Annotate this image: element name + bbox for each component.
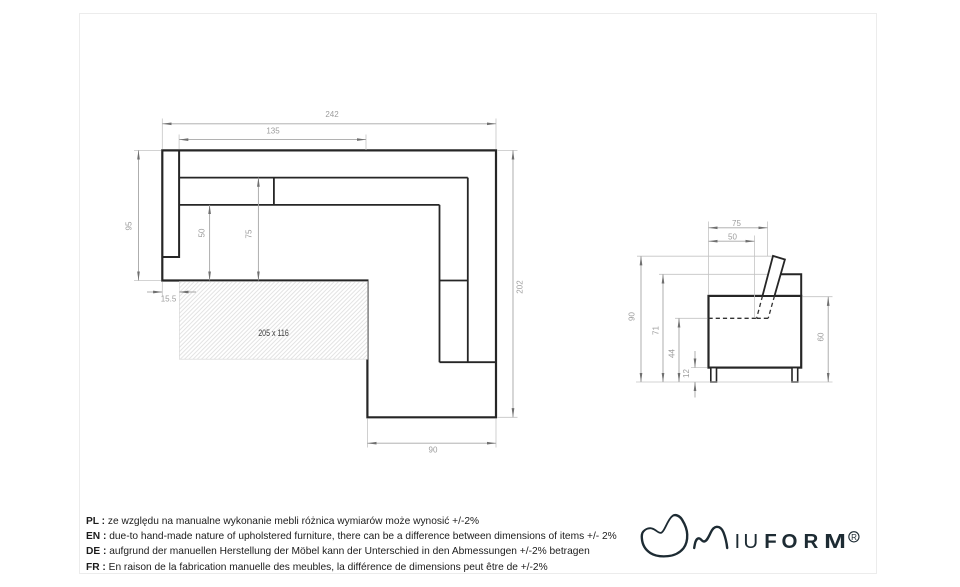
- svg-text:O: O: [782, 530, 798, 553]
- svg-text:12: 12: [682, 369, 691, 378]
- svg-text:202: 202: [516, 280, 525, 294]
- svg-text:205 x 116: 205 x 116: [258, 328, 289, 338]
- svg-text:135: 135: [266, 127, 280, 136]
- svg-text:50: 50: [728, 233, 737, 242]
- svg-text:U: U: [743, 530, 758, 553]
- svg-text:95: 95: [125, 221, 134, 230]
- svg-text:I: I: [734, 530, 740, 553]
- svg-text:R: R: [851, 533, 857, 542]
- svg-text:60: 60: [817, 332, 826, 341]
- svg-text:242: 242: [325, 110, 339, 119]
- svg-text:M: M: [824, 530, 846, 553]
- svg-text:75: 75: [732, 219, 741, 228]
- svg-text:75: 75: [245, 229, 254, 238]
- svg-text:15.5: 15.5: [161, 295, 177, 304]
- svg-text:50: 50: [198, 228, 207, 237]
- svg-text:R: R: [804, 530, 819, 553]
- svg-text:90: 90: [429, 446, 438, 455]
- svg-text:90: 90: [628, 312, 637, 321]
- svg-text:71: 71: [652, 326, 661, 335]
- svg-text:F: F: [764, 530, 777, 553]
- svg-text:44: 44: [668, 349, 677, 358]
